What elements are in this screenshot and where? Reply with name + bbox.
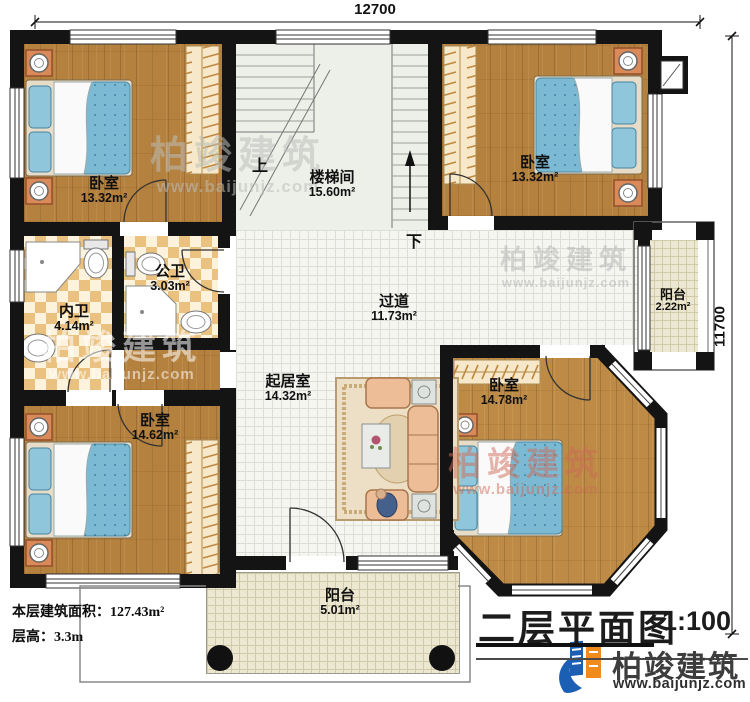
label-living: 起居室14.32m² [265,374,312,403]
stair-up-mark: 上 [252,152,268,176]
wardrobe-top-right [444,46,476,184]
label-stairwell: 楼梯间15.60m² [309,170,356,199]
label-bath-inner: 内卫4.14m² [54,304,94,333]
info-block: 本层建筑面积：127.43m² 层高：3.3m [12,600,164,650]
label-balcony-right: 阳台 2.22m² [656,288,691,313]
label-balcony-bottom: 阳台5.01m² [320,588,360,617]
toilet-inner-bath [84,240,108,278]
dimension-right: 11700 [712,297,729,357]
label-bedroom-top-right: 卧室13.32m² [512,155,559,184]
stairs [236,44,428,228]
plan-linework [0,0,750,702]
shower-public-bath [126,286,176,336]
label-bedroom-top-left: 卧室13.32m² [81,176,128,205]
bed-bottom-left [26,414,132,566]
label-bath-public: 公卫3.03m² [150,264,190,293]
floor-area-note: 本层建筑面积：127.43m² [12,600,164,625]
dimension-top: 12700 [340,1,410,18]
stair-down-mark: 下 [406,228,422,252]
label-hallway: 过道11.73m² [371,294,417,323]
floor-height-note: 层高：3.3m [12,625,164,650]
wardrobe-bottom-left [186,440,218,576]
bed-bottom-right [452,414,562,536]
wardrobe-top-left [186,46,219,174]
drawing-scale: 1:100 [662,606,731,637]
sink-inner-bath [21,334,55,362]
floor-plan: 柏竣建筑 www.baijunjz.com 柏竣建筑 www.baijunjz.… [0,0,750,702]
sink-public-bath [181,311,211,333]
label-bedroom-bottom-right: 卧室14.78m² [481,378,528,407]
label-bedroom-bottom-left: 卧室14.62m² [132,413,179,442]
brand-website: www.baijunjz.com [613,676,746,692]
shower-inner-bath [26,242,80,292]
flue-box [656,56,688,94]
coffee-table [362,424,390,468]
